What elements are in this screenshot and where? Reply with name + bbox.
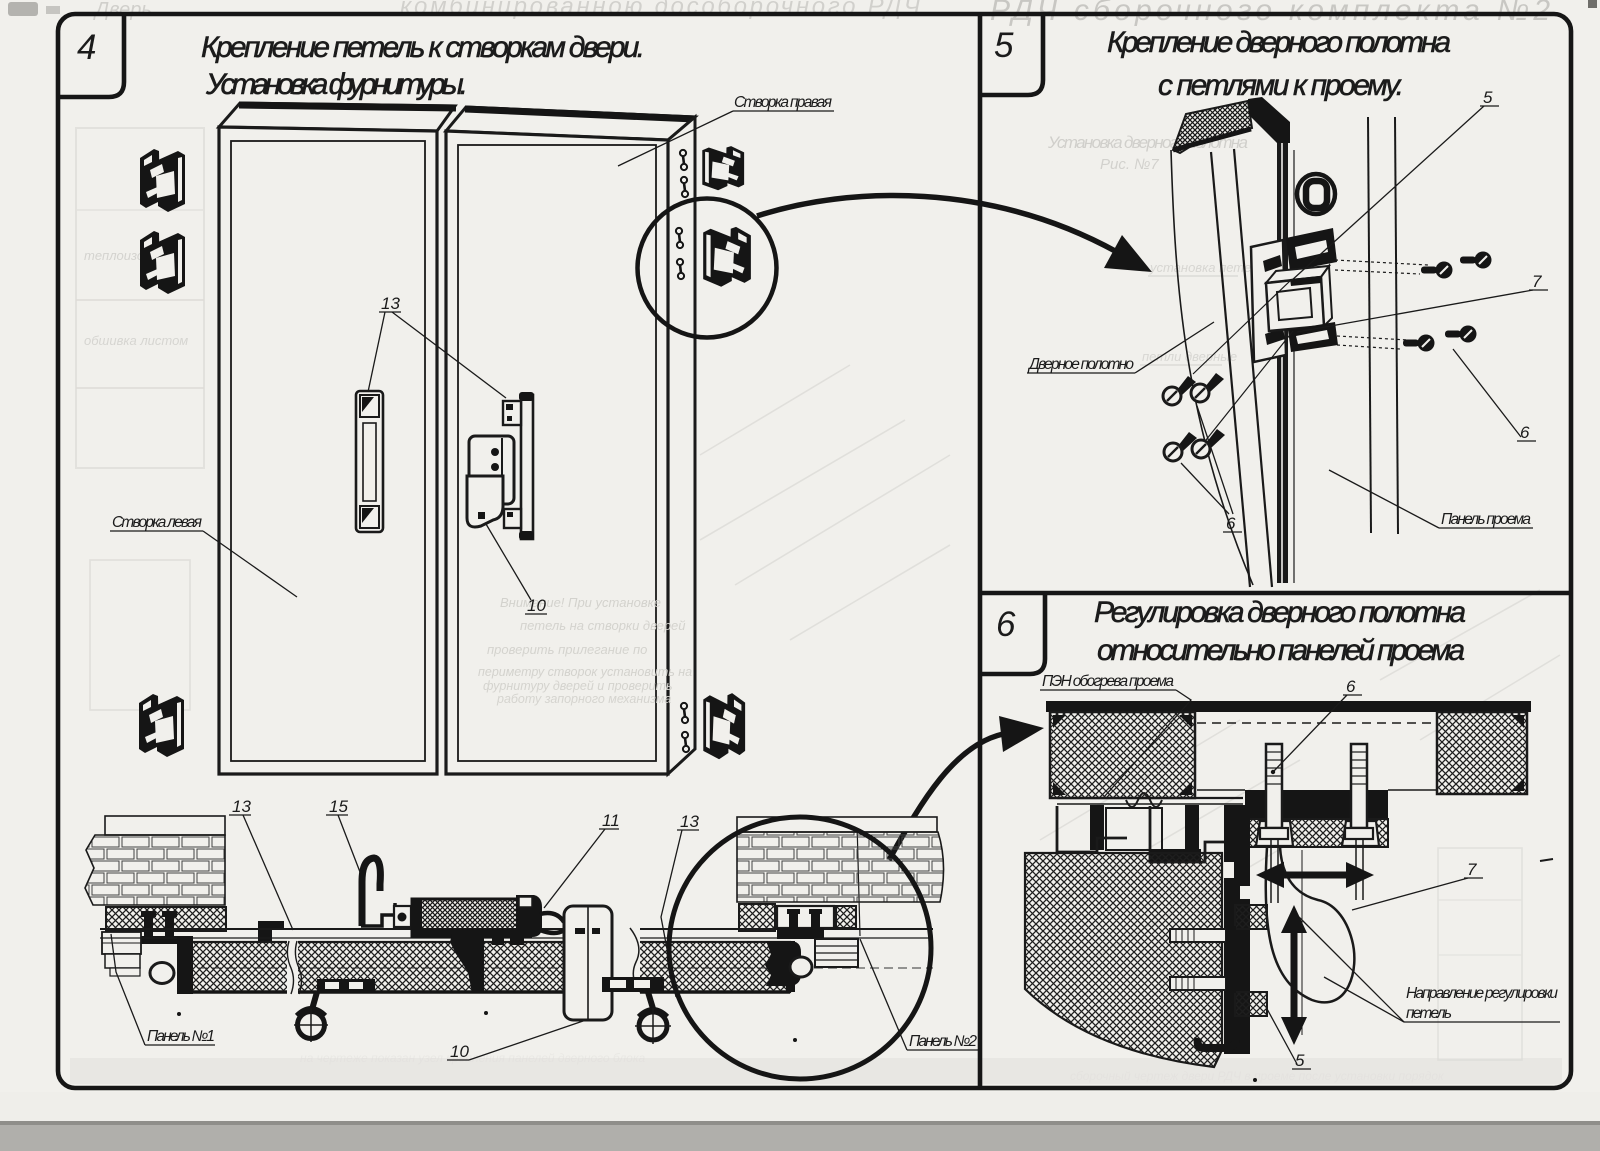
svg-text:Установка фурнитуры.: Установка фурнитуры. (205, 68, 468, 101)
svg-text:15: 15 (329, 797, 348, 816)
svg-text:с петлями к проему.: с петлями к проему. (1158, 69, 1404, 102)
svg-text:7: 7 (1467, 860, 1477, 879)
svg-text:Створка правая: Створка правая (734, 94, 832, 111)
svg-text:петель на створки дверей: петель на створки дверей (520, 618, 686, 633)
svg-text:Дверное полотно: Дверное полотно (1027, 356, 1134, 373)
svg-text:5: 5 (1483, 88, 1493, 107)
svg-text:6: 6 (1226, 514, 1236, 533)
svg-text:работу запорного механизма: работу запорного механизма (496, 692, 671, 706)
svg-text:Внимание! При установке: Внимание! При установке (500, 595, 661, 610)
svg-text:Панель №1: Панель №1 (147, 1028, 215, 1045)
svg-text:6: 6 (996, 605, 1016, 644)
svg-text:фурнитуру дверей и проверить: фурнитуру дверей и проверить (483, 679, 673, 693)
svg-text:5: 5 (1295, 1051, 1305, 1070)
svg-text:Створка левая: Створка левая (112, 514, 202, 531)
svg-text:Направление регулировки: Направление регулировки (1406, 985, 1558, 1002)
svg-text:13: 13 (680, 812, 699, 831)
svg-text:13: 13 (381, 294, 400, 313)
svg-text:обшивка листом: обшивка листом (84, 333, 188, 348)
svg-text:4: 4 (77, 28, 96, 67)
svg-text:13: 13 (232, 797, 251, 816)
svg-text:комбинированною дособорочного: комбинированною дособорочного РДЧ (400, 0, 921, 20)
svg-text:установка петель: установка петель (1149, 260, 1265, 275)
svg-text:6: 6 (1520, 423, 1530, 442)
svg-text:периметру створок установить н: периметру створок установить на (478, 665, 692, 679)
svg-text:петли дверные: петли дверные (1142, 349, 1237, 364)
svg-text:6: 6 (1346, 677, 1356, 696)
svg-text:Панель №2: Панель №2 (909, 1033, 977, 1050)
svg-text:проверить прилегание по: проверить прилегание по (487, 642, 647, 657)
svg-text:Регулировка дверного полотна: Регулировка дверного полотна (1094, 596, 1466, 629)
svg-text:Крепление петель к створкам дв: Крепление петель к створкам двери. (201, 31, 645, 64)
svg-text:11: 11 (602, 811, 620, 830)
svg-text:Рис. №7: Рис. №7 (1100, 156, 1159, 173)
svg-text:7: 7 (1532, 272, 1542, 291)
svg-text:ПЭН обогрева проема: ПЭН обогрева проема (1042, 673, 1174, 690)
svg-text:Панель проема: Панель проема (1441, 511, 1531, 528)
svg-text:относительно панелей проема: относительно панелей проема (1097, 634, 1465, 667)
svg-text:петель: петель (1406, 1005, 1452, 1022)
svg-text:Крепление дверного полотна: Крепление дверного полотна (1107, 26, 1451, 59)
svg-text:10: 10 (450, 1042, 469, 1061)
svg-text:5: 5 (994, 26, 1014, 65)
